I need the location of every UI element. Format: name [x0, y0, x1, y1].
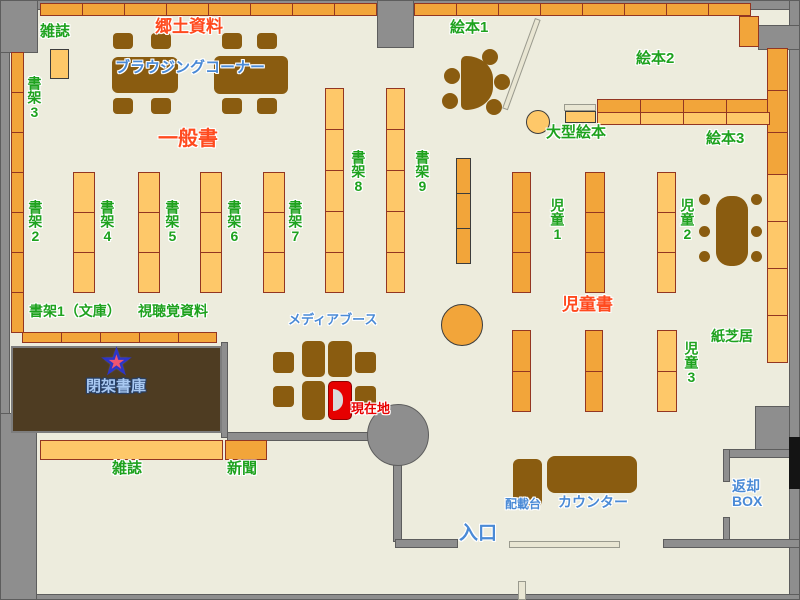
- bookshelf: [640, 99, 684, 113]
- bookshelf: [597, 99, 641, 113]
- wall-right: [789, 0, 800, 600]
- wall-nook-top: [723, 449, 790, 458]
- label-children-3: 児童3: [683, 341, 698, 385]
- bookshelf: [666, 3, 709, 16]
- media-booth-seat: [273, 352, 294, 373]
- stool: [699, 251, 710, 262]
- bookshelf: [726, 99, 770, 113]
- bookshelf: [767, 132, 788, 175]
- label-shelf8: 書架8: [350, 150, 365, 194]
- bookshelf: [22, 332, 62, 343]
- bookshelf: [640, 112, 684, 125]
- map-shapes-layer: [0, 0, 800, 600]
- bookshelf: [200, 252, 222, 293]
- label-picture-books-3: 絵本3: [706, 131, 744, 148]
- label-children-2: 児童2: [679, 198, 694, 242]
- bookshelf: [82, 3, 125, 16]
- bookshelf: [726, 112, 770, 125]
- bookshelf: [540, 3, 583, 16]
- stool: [751, 226, 762, 237]
- bookshelf: [767, 315, 788, 363]
- bookshelf: [386, 88, 405, 130]
- label-shelf3: 書架3: [26, 76, 41, 120]
- stool: [444, 68, 460, 84]
- stool: [699, 226, 710, 237]
- bookshelf: [498, 3, 541, 16]
- media-booth: [302, 381, 325, 420]
- bookshelf: [657, 371, 677, 412]
- label-newspaper: 新聞: [227, 461, 257, 478]
- bookshelf: [73, 252, 95, 293]
- bookshelf: [585, 330, 603, 372]
- bookshelf: [708, 3, 751, 16]
- stool: [699, 194, 710, 205]
- bookshelf: [767, 174, 788, 222]
- chair: [113, 98, 133, 114]
- bookshelf: [386, 170, 405, 212]
- media-booth: [328, 341, 352, 377]
- bookshelf: [200, 172, 222, 213]
- bookshelf: [250, 3, 293, 16]
- label-shelf6: 書架6: [226, 200, 241, 244]
- bookshelf: [386, 252, 405, 293]
- stool: [494, 74, 510, 90]
- stool: [751, 194, 762, 205]
- wall-bottom: [0, 594, 800, 600]
- bookshelf: [767, 90, 788, 133]
- bookshelf: [325, 252, 344, 293]
- bookshelf: [325, 88, 344, 130]
- wall-pillar-top: [377, 0, 414, 48]
- wall-diagonal-foot: [564, 104, 596, 111]
- bookshelf: [585, 212, 605, 253]
- bookshelf: [11, 172, 24, 213]
- label-shelf7: 書架7: [287, 200, 302, 244]
- label-picture-books-1: 絵本1: [450, 20, 488, 37]
- bookshelf: [767, 48, 788, 91]
- bookshelf: [138, 212, 160, 253]
- bookshelf: [585, 371, 603, 412]
- bookshelf: [657, 330, 677, 372]
- label-children-1: 児童1: [549, 198, 564, 242]
- bookshelf: [582, 3, 625, 16]
- bookshelf: [100, 332, 140, 343]
- bookshelf: [657, 172, 676, 213]
- bookshelf: [11, 252, 24, 293]
- bookshelf: [512, 172, 531, 213]
- bookshelf-newspaper: [225, 440, 267, 460]
- bookshelf: [683, 99, 727, 113]
- bookshelf: [263, 212, 285, 253]
- bookshelf: [11, 212, 24, 253]
- bookshelf: [456, 228, 471, 264]
- bookshelf-magazine-stand: [50, 49, 69, 79]
- label-counter: カウンター: [558, 495, 628, 510]
- entrance-door-tick: [518, 581, 526, 600]
- bookshelf: [767, 268, 788, 316]
- bookshelf: [386, 129, 405, 171]
- bookshelf: [263, 172, 285, 213]
- bookshelf: [11, 92, 24, 133]
- bookshelf: [11, 52, 24, 93]
- bookshelf: [739, 16, 759, 47]
- bookshelf: [325, 211, 344, 253]
- bookshelf: [178, 332, 217, 343]
- chair: [257, 33, 277, 49]
- entrance-door: [509, 541, 620, 548]
- bookshelf: [11, 132, 24, 173]
- bookshelf: [61, 332, 101, 343]
- label-magazines-bottom: 雑誌: [112, 461, 142, 478]
- children-table: [716, 196, 748, 266]
- bookshelf-magazines: [40, 440, 223, 460]
- bookshelf: [585, 172, 605, 213]
- wall-nook-vert1: [723, 449, 730, 482]
- bookshelf: [11, 292, 24, 333]
- bookshelf: [166, 3, 209, 16]
- label-closed-stacks: 閉架書庫: [86, 379, 146, 396]
- wall-diagonal: [502, 18, 540, 110]
- wall-corner-topright: [758, 25, 800, 50]
- bookshelf: [325, 170, 344, 212]
- bookshelf: [208, 3, 251, 16]
- media-booth-seat: [355, 352, 376, 373]
- label-general-books: 一般書: [158, 128, 218, 150]
- bookshelf: [585, 252, 605, 293]
- stool: [482, 49, 498, 65]
- bookshelf: [657, 212, 676, 253]
- bookshelf: [138, 252, 160, 293]
- label-return-box: 返却 BOX: [732, 479, 762, 510]
- label-entrance: 入口: [459, 524, 497, 545]
- stool: [751, 251, 762, 262]
- bookshelf: [456, 3, 499, 16]
- counter-desk: [547, 456, 637, 493]
- round-table: [441, 304, 483, 346]
- label-kamishibai: 紙芝居: [711, 329, 753, 344]
- media-booth-seat: [273, 386, 294, 407]
- bookshelf: [414, 3, 457, 16]
- label-current-location: 現在地: [351, 402, 390, 416]
- bookshelf: [624, 3, 667, 16]
- bookshelf: [512, 212, 531, 253]
- chair: [222, 98, 242, 114]
- star-marker-icon: ★: [103, 348, 130, 378]
- bookshelf: [139, 332, 179, 343]
- label-av-materials: 視聴覚資料: [138, 304, 208, 319]
- wall-corner-topleft: [0, 0, 38, 53]
- bookshelf: [456, 158, 471, 194]
- wall-area-bottomleft: [0, 413, 37, 600]
- stool: [486, 99, 502, 115]
- bookshelf: [200, 212, 222, 253]
- chair: [257, 98, 277, 114]
- stool: [442, 93, 458, 109]
- label-media-booth: メディアブース: [288, 313, 377, 327]
- bookshelf: [73, 212, 95, 253]
- bookshelf: [138, 172, 160, 213]
- media-booth: [302, 341, 325, 377]
- bookshelf: [683, 112, 727, 125]
- wall-stacks-side: [221, 342, 228, 438]
- bookshelf: [456, 193, 471, 229]
- label-local-materials: 郷土資料: [155, 18, 223, 37]
- wall-bottom-right: [663, 539, 800, 548]
- label-shelf9: 書架9: [414, 150, 429, 194]
- label-magazines-top: 雑誌: [40, 24, 70, 41]
- wall-bar-vertical: [393, 462, 402, 542]
- bookshelf: [657, 252, 676, 293]
- bookshelf-small: [565, 111, 596, 123]
- bookshelf: [767, 221, 788, 269]
- label-stand: 配載台: [505, 498, 541, 511]
- chair: [222, 33, 242, 49]
- label-shelf1-bunko: 書架1（文庫）: [29, 304, 121, 319]
- label-shelf5: 書架5: [164, 200, 179, 244]
- bookshelf: [386, 211, 405, 253]
- label-shelf2: 書架2: [27, 200, 42, 244]
- label-picture-books-2: 絵本2: [636, 51, 674, 68]
- bookshelf: [512, 330, 531, 372]
- chair: [113, 33, 133, 49]
- label-shelf4: 書架4: [99, 200, 114, 244]
- label-large-picture-books: 大型絵本: [546, 125, 606, 142]
- bookshelf: [124, 3, 167, 16]
- bookshelf: [263, 252, 285, 293]
- wall-black-section: [789, 437, 800, 489]
- bookshelf: [292, 3, 335, 16]
- label-browsing-corner: ブラウジングコーナー: [115, 60, 265, 77]
- library-floor-map: 雑誌 郷土資料 ブラウジングコーナー 書架3 一般書 書架2 書架4 書架5 書…: [0, 0, 800, 600]
- bookshelf: [40, 3, 83, 16]
- bookshelf: [334, 3, 377, 16]
- label-children-books: 児童書: [562, 296, 613, 315]
- bookshelf: [512, 252, 531, 293]
- bookshelf: [73, 172, 95, 213]
- bookshelf: [325, 129, 344, 171]
- bookshelf: [512, 371, 531, 412]
- chair: [151, 98, 171, 114]
- wall-entrance-left: [395, 539, 458, 548]
